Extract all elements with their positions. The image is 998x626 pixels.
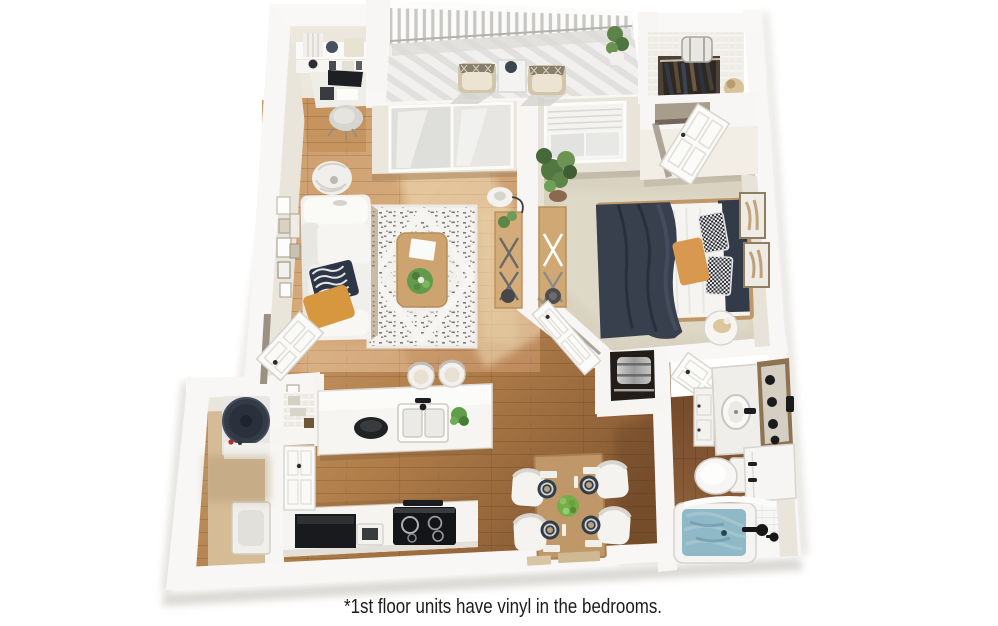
svg-text:*1st floor units have vinyl in: *1st floor units have vinyl in the bedro… bbox=[344, 595, 662, 618]
